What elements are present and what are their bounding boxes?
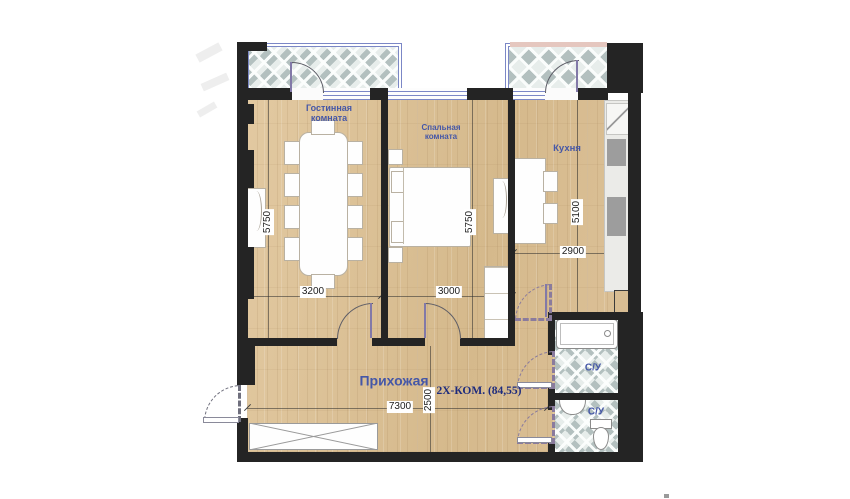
dim-hallway-height: 2500	[423, 387, 435, 413]
bedroom-wardrobe	[484, 266, 510, 346]
wall-living-hall-right	[372, 338, 381, 346]
nightstand	[388, 149, 403, 165]
door-leaf-bedroom	[424, 303, 426, 338]
wall-pier	[578, 88, 608, 100]
chair	[284, 237, 300, 261]
wall-top-left-bar	[237, 42, 267, 51]
wall-left-upper	[237, 42, 248, 385]
dim-kitchen-width: 2900	[560, 246, 586, 258]
door-leaf-bathroom-lower	[517, 437, 552, 443]
floor-plan: Гостинная комната Спальная комната Кухня…	[0, 0, 850, 499]
door-leaf-kitchen	[545, 284, 547, 317]
wall-pilaster	[247, 346, 255, 385]
room-label-hallway: Прихожая	[359, 373, 428, 388]
room-label-bedroom: Спальная комната	[410, 124, 472, 142]
balcony-right-brick-strip	[510, 42, 607, 47]
chair	[284, 141, 300, 165]
door-leaf-living	[370, 303, 372, 338]
dim-living-width: 3200	[300, 286, 326, 298]
decor-smudge	[195, 42, 222, 62]
wall-pilaster	[247, 104, 254, 124]
door-leaf-balcony-kitchen	[576, 60, 578, 92]
hall-wardrobe	[249, 423, 378, 450]
chair	[284, 173, 300, 197]
room-label-bathroom-upper: С/У	[585, 363, 601, 374]
door-leaf-entrance	[203, 417, 239, 423]
nightstand	[388, 247, 403, 263]
decor-smudge	[197, 101, 218, 117]
stove	[607, 139, 626, 166]
dim-kitchen-height: 5100	[571, 199, 583, 225]
dim-hallway-width: 7300	[387, 401, 413, 413]
kitchen-table	[514, 158, 546, 244]
wall-pilaster	[247, 150, 254, 188]
decor-smudge	[201, 73, 230, 92]
wall-pier	[248, 88, 292, 100]
bed-headboard-line	[403, 168, 404, 244]
wall-top-right-corner	[607, 43, 643, 93]
room-label-kitchen: Кухня	[553, 144, 581, 154]
wall-bathroom-middle	[548, 393, 620, 400]
wall-pilaster	[247, 247, 254, 299]
chair	[347, 173, 363, 197]
window-bedroom	[388, 88, 467, 100]
chair	[284, 205, 300, 229]
wall-right-lower	[618, 312, 643, 452]
wall-pier	[467, 88, 513, 100]
partition-bedroom-kitchen	[508, 100, 515, 346]
chair	[543, 171, 558, 192]
chair	[347, 205, 363, 229]
room-label-living: Гостинная комната	[290, 104, 368, 124]
artifact-dot	[664, 494, 669, 498]
kitchen-appliance	[607, 197, 626, 236]
chair	[347, 141, 363, 165]
wall-right-upper	[628, 93, 641, 312]
chair	[347, 237, 363, 261]
wall-bathroom-top	[548, 312, 628, 320]
chair	[543, 203, 558, 224]
dining-table	[299, 132, 348, 276]
partition-living-bedroom	[381, 100, 388, 346]
dim-bedroom-width: 3000	[436, 286, 462, 298]
wall-bedroom-hall-right	[460, 338, 508, 346]
dim-living-height: 5750	[262, 209, 274, 235]
balcony-left-floor	[248, 46, 399, 90]
wall-bottom	[237, 452, 643, 462]
window-living	[323, 88, 370, 100]
bathtub-drain	[604, 330, 611, 337]
wall-bedroom-hall-left	[388, 338, 425, 346]
door-leaf-bathroom-upper	[517, 382, 552, 388]
door-leaf-balcony-living	[290, 62, 292, 92]
window-kitchen	[513, 88, 545, 100]
wall-pier	[370, 88, 388, 100]
dim-bedroom-height: 5750	[464, 209, 476, 235]
room-label-bathroom-lower: С/У	[588, 407, 604, 418]
apartment-title: 2Х-КОМ. (84,55)	[436, 385, 521, 397]
wall-living-hall-left	[247, 338, 337, 346]
kitchen-sink	[606, 103, 629, 135]
